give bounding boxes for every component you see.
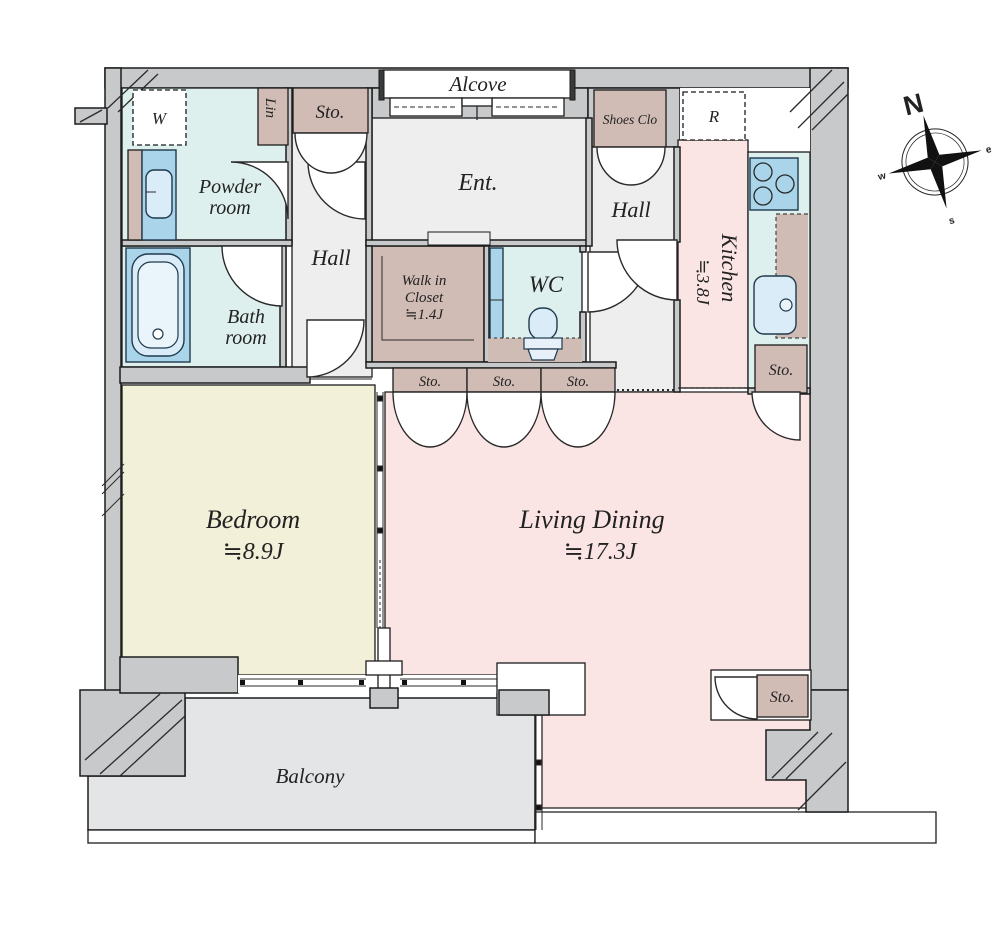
mullion-base [370,688,398,708]
label-wic-1: Walk in [402,273,447,289]
label-storage-c: Sto. [567,374,589,390]
wall-bedroom-top [120,367,310,383]
wall-kitchen-bottom [674,300,680,392]
label-powder-2: room [209,197,250,219]
bedroom-bottom-wall [120,657,238,693]
stove [750,158,798,210]
wall-wic-left [366,246,372,362]
label-shoes-closet: Shoes Clo [603,112,658,127]
label-bedroom: Bedroom [206,505,300,534]
label-washer: W [152,109,168,128]
label-wic-area: ≒1.4J [405,307,444,323]
label-living-area: ≒17.3J [564,539,638,565]
ent-step [428,232,490,245]
label-hall-left: Hall [310,245,350,270]
mullion-horizontal [366,661,402,675]
label-bedroom-area: ≒8.9J [223,539,285,565]
label-hall-right: Hall [610,197,650,222]
label-kitchen-area: ≒3.8J [693,259,713,306]
label-alcove: Alcove [447,72,506,96]
label-bath-1: Bath [227,306,265,328]
kitchen-sink [754,276,796,334]
neighbor-band [535,812,936,843]
balcony-column [80,690,185,776]
label-ent: Ent. [457,170,497,196]
floor-plan-svg: Alcove Ent. Hall Hall Powder room Bath r… [0,0,1000,926]
label-storage-a: Sto. [419,374,441,390]
label-bath-2: room [225,327,266,349]
label-linen: Lin [262,97,278,118]
label-storage-top: Sto. [315,102,344,123]
wall-hallright-left [586,118,592,246]
label-wc: WC [529,272,564,297]
label-wic-2: Closet [405,290,444,306]
wall-wc-right-top [580,246,586,252]
balcony-parapet [88,830,535,843]
mullion-vertical [378,628,390,690]
pillar-block [499,690,549,715]
alcove-jamb-left [379,70,384,100]
label-living: Living Dining [518,505,664,534]
label-powder-1: Powder [198,176,261,198]
label-balcony: Balcony [276,764,345,788]
floor-plan-page: Alcove Ent. Hall Hall Powder room Bath r… [0,0,1000,926]
wall-powder-bath [122,240,292,246]
alcove-jamb-right [570,70,575,100]
label-storage-living: Sto. [770,689,794,706]
wall-right [810,68,848,690]
bathtub [126,248,190,362]
label-kitchen: Kitchen [717,233,742,302]
wall-left [105,68,121,693]
label-storage-b: Sto. [493,374,515,390]
wall-kitchen-top [674,147,680,242]
label-fridge: R [708,107,720,126]
label-storage-kitchen: Sto. [769,362,793,379]
powder-vanity [128,150,176,240]
wall-sto-strip-top [366,362,616,368]
